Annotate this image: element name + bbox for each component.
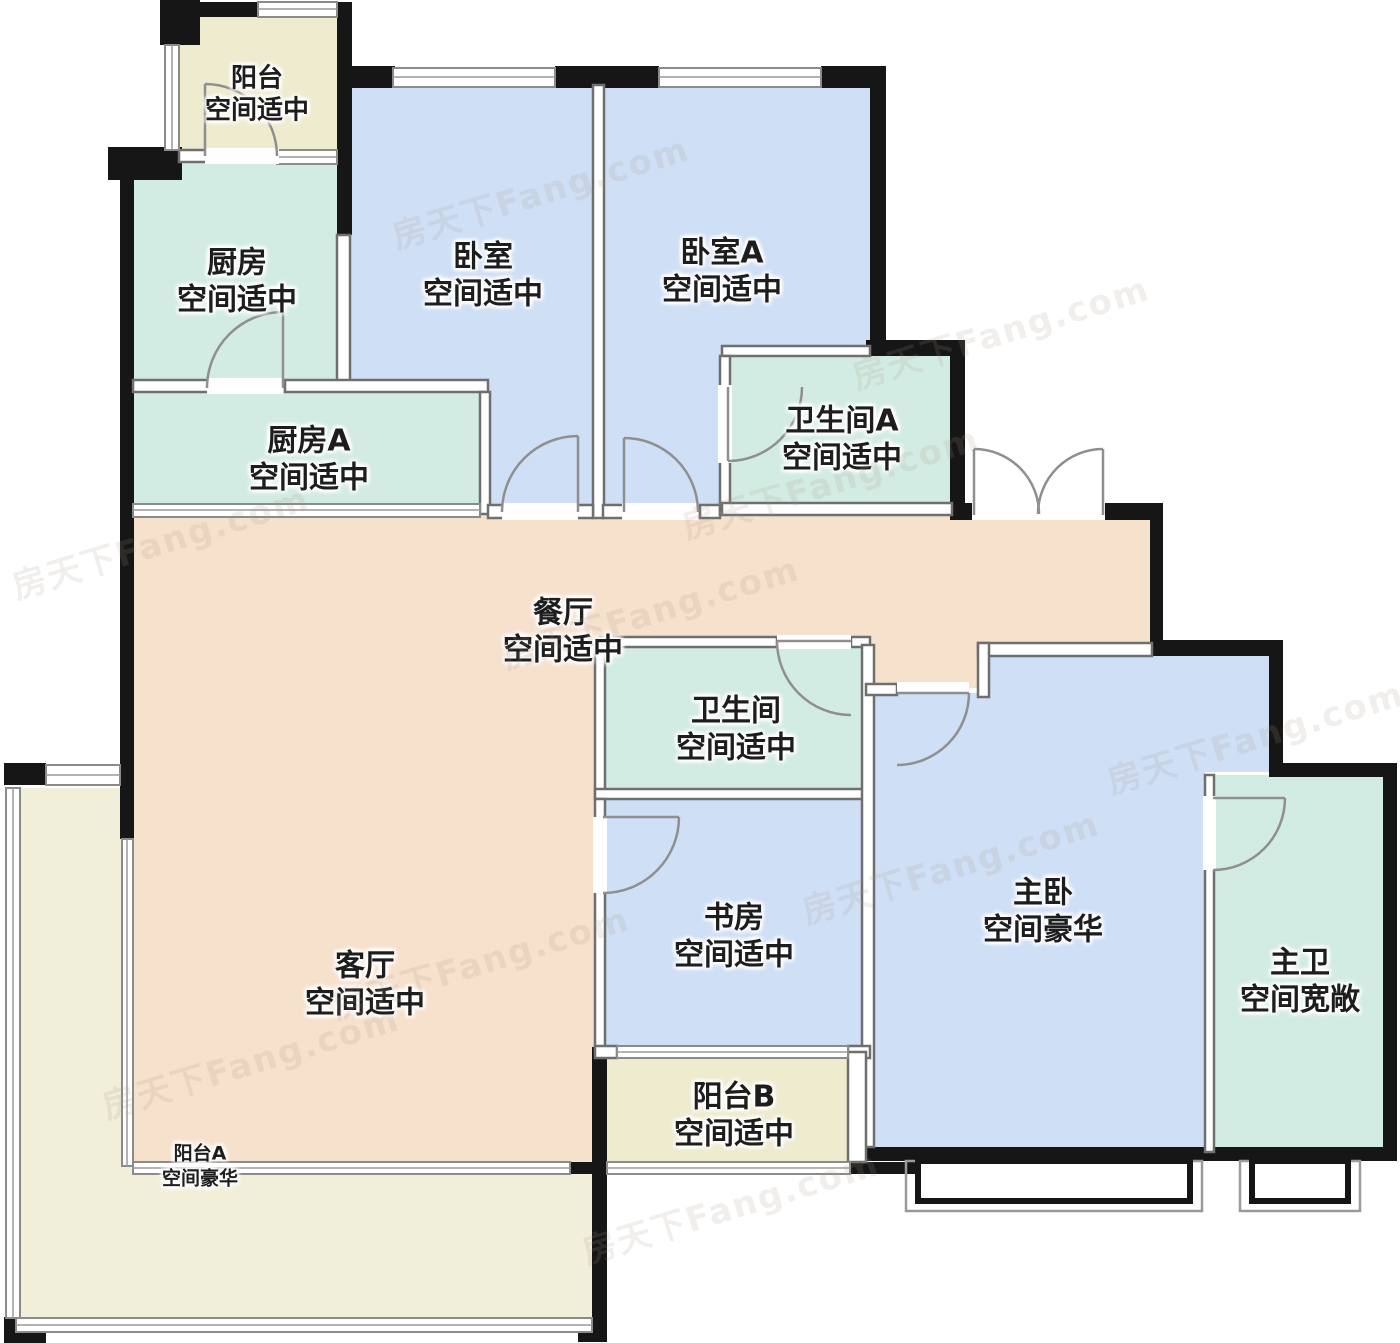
- room-note: 空间宽敞: [1240, 982, 1360, 1019]
- wall-segment: [570, 1162, 607, 1174]
- room-name: 餐厅: [503, 595, 623, 632]
- wall-segment: [592, 1047, 607, 1342]
- room-label-living: 客厅 空间适中: [305, 948, 425, 1021]
- room-note: 空间适中: [305, 985, 425, 1022]
- wall-segment: [1383, 763, 1397, 1161]
- room-label-balcony-b: 阳台B 空间适中: [674, 1079, 794, 1152]
- room-label-kitchen: 厨房 空间适中: [177, 245, 297, 318]
- room-label-master-bath: 主卫 空间宽敞: [1240, 945, 1360, 1018]
- room-name: 厨房: [177, 245, 297, 282]
- room-name: 卧室: [423, 239, 543, 276]
- interior-wall-segment: [603, 505, 624, 518]
- wall-segment: [950, 503, 974, 520]
- interior-wall-segment: [133, 380, 209, 392]
- bay-window: [918, 1161, 1190, 1201]
- room-note: 空间适中: [676, 730, 796, 767]
- interior-wall-segment: [285, 380, 488, 392]
- room-label-bedroom: 卧室 空间适中: [423, 239, 543, 312]
- wall-segment: [1269, 763, 1397, 777]
- interior-wall-segment: [700, 505, 720, 518]
- interior-wall-segment: [593, 85, 604, 518]
- room-label-bedroom-a: 卧室A 空间适中: [662, 235, 782, 308]
- room-note: 空间适中: [674, 1116, 794, 1153]
- interior-wall-segment: [595, 789, 870, 799]
- interior-wall-segment: [600, 637, 777, 647]
- wall-segment: [160, 2, 258, 17]
- room-label-bathroom-a: 卫生间A 空间适中: [782, 403, 902, 476]
- room-note: 空间适中: [662, 272, 782, 309]
- wall-segment: [950, 340, 965, 520]
- room-name: 阳台B: [674, 1079, 794, 1116]
- wall-segment: [1269, 651, 1283, 769]
- room-name: 主卧: [983, 875, 1103, 912]
- interior-wall-segment: [978, 643, 1152, 656]
- interior-wall-segment: [337, 235, 350, 390]
- room-note: 空间适中: [205, 95, 309, 127]
- room-note: 空间适中: [249, 460, 369, 497]
- room-note: 空间适中: [503, 632, 623, 669]
- room-name: 阳台A: [162, 1141, 238, 1166]
- door-gap: [718, 385, 732, 463]
- door-gap: [622, 503, 698, 520]
- room-note: 空间适中: [177, 282, 297, 319]
- interior-wall-segment: [978, 643, 989, 697]
- bay-windows: [906, 1161, 1360, 1211]
- interior-wall-segment: [848, 1052, 866, 1162]
- room-name: 客厅: [305, 948, 425, 985]
- bay-window: [1252, 1161, 1348, 1201]
- interior-wall-segment: [722, 346, 870, 356]
- interior-wall-segment: [480, 392, 490, 514]
- interior-wall-segment: [720, 356, 730, 389]
- floorplan-canvas: 阳台 空间适中 厨房 空间适中 厨房A 空间适中 卧室 空间适中 卧室A 空间适…: [0, 0, 1400, 1343]
- room-note: 空间适中: [782, 440, 902, 477]
- room-name: 阳台: [205, 63, 309, 95]
- wall-segment: [4, 763, 46, 785]
- room-name: 主卫: [1240, 945, 1360, 982]
- room-label-balcony-a: 阳台A 空间豪华: [162, 1141, 238, 1190]
- wall-segment: [337, 66, 395, 88]
- room-name: 卧室A: [662, 235, 782, 272]
- room-label-study: 书房 空间适中: [674, 900, 794, 973]
- room-name: 卫生间A: [782, 403, 902, 440]
- interior-wall-segment: [1205, 868, 1214, 1152]
- door-gap: [1203, 796, 1216, 870]
- wall-segment: [1150, 503, 1163, 656]
- wall-segment: [870, 66, 886, 356]
- room-note: 空间豪华: [162, 1166, 238, 1191]
- room-label-kitchen-a: 厨房A 空间适中: [249, 423, 369, 496]
- room-note: 空间适中: [674, 937, 794, 974]
- door-gap: [205, 148, 279, 164]
- wall-segment: [1150, 640, 1283, 656]
- room-note: 空间豪华: [983, 912, 1103, 949]
- room-label-dining: 餐厅 空间适中: [503, 595, 623, 668]
- interior-wall-segment: [595, 1046, 617, 1058]
- room-note: 空间适中: [423, 276, 543, 313]
- room-label-master-bedroom: 主卧 空间豪华: [983, 875, 1103, 948]
- wall-segment: [555, 66, 659, 88]
- wall-segment: [120, 147, 134, 839]
- interior-wall-segment: [722, 503, 952, 515]
- door-gap: [593, 817, 607, 893]
- wall-segment: [108, 147, 182, 180]
- door-gap: [207, 378, 283, 394]
- interior-wall-segment: [595, 891, 605, 1052]
- door-gap: [502, 503, 578, 520]
- interior-wall-segment: [866, 684, 897, 695]
- room-name: 厨房A: [249, 423, 369, 460]
- room-label-balcony-top: 阳台 空间适中: [205, 63, 309, 126]
- wall-segment: [337, 2, 352, 235]
- room-label-bathroom: 卫生间 空间适中: [676, 693, 796, 766]
- room-name: 卫生间: [676, 693, 796, 730]
- room-name: 书房: [674, 900, 794, 937]
